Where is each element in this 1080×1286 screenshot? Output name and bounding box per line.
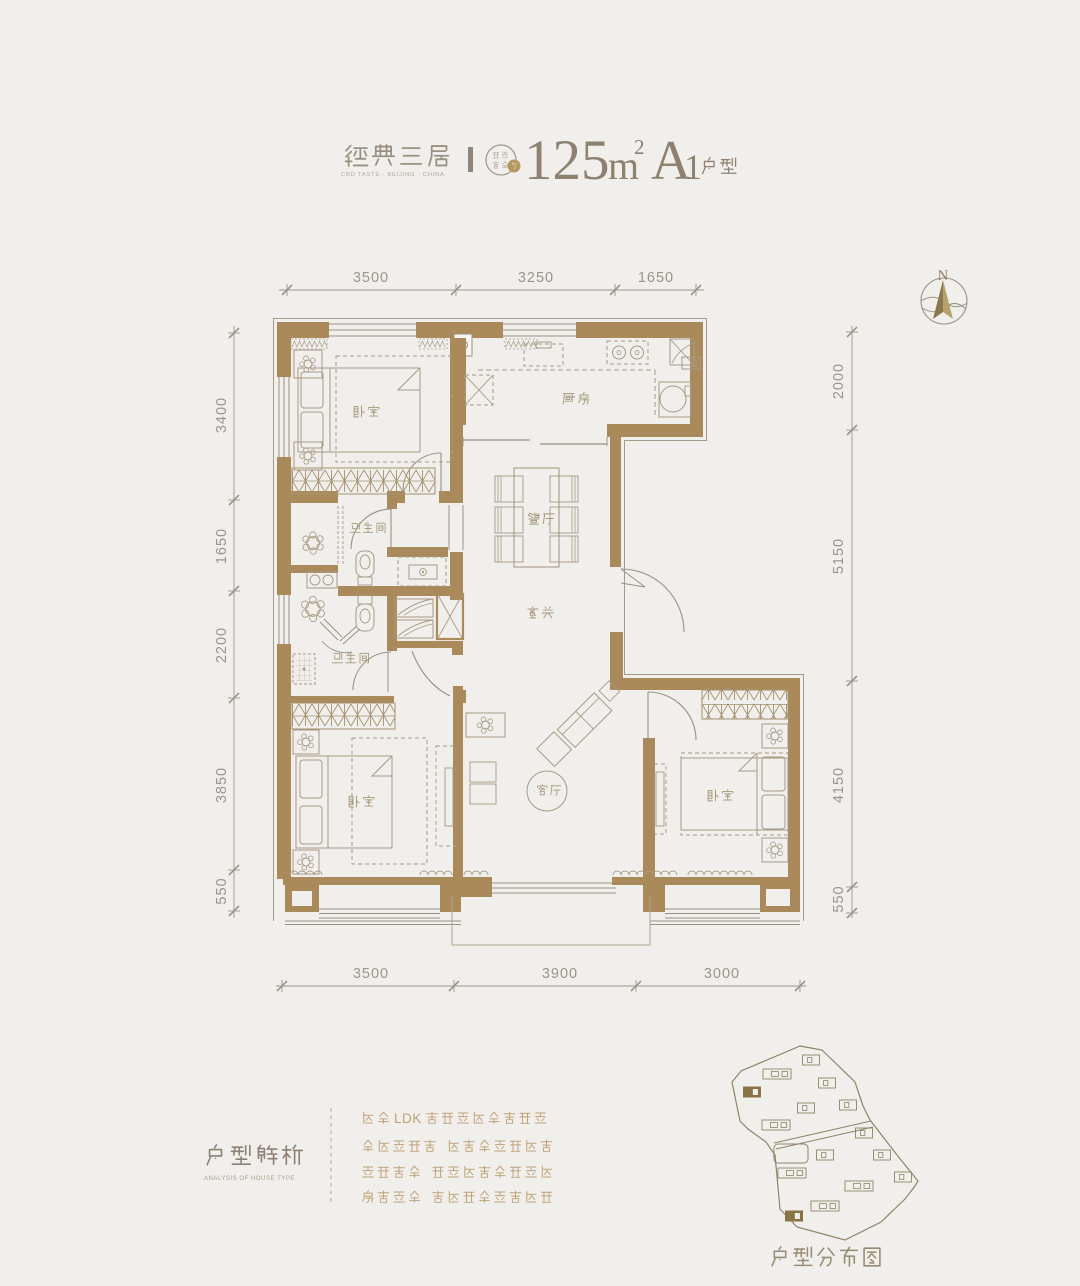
svg-text:2200: 2200	[214, 627, 230, 663]
svg-text:3500: 3500	[353, 966, 389, 982]
svg-text:3900: 3900	[542, 966, 578, 982]
svg-text:550: 550	[831, 885, 847, 912]
svg-text:3250: 3250	[518, 270, 554, 286]
svg-text:4150: 4150	[831, 767, 847, 803]
svg-text:1650: 1650	[638, 270, 674, 286]
svg-text:3850: 3850	[214, 767, 230, 803]
svg-text:3400: 3400	[214, 397, 230, 433]
svg-text:LDK: LDK	[394, 1111, 422, 1126]
svg-text:3000: 3000	[704, 966, 740, 982]
svg-text:3500: 3500	[353, 270, 389, 286]
svg-text:2: 2	[634, 135, 645, 159]
svg-text:5150: 5150	[831, 538, 847, 574]
svg-text:ANALYSIS OF HOUSE TYPE: ANALYSIS OF HOUSE TYPE	[204, 1175, 295, 1182]
svg-text:550: 550	[214, 877, 230, 904]
svg-text:2000: 2000	[831, 363, 847, 399]
svg-text:N: N	[938, 268, 949, 284]
svg-text:1: 1	[684, 147, 702, 187]
svg-text:CBD TASTE · BEIJING · CHINA: CBD TASTE · BEIJING · CHINA	[341, 172, 445, 178]
svg-text:1650: 1650	[214, 528, 230, 564]
svg-text:125: 125	[524, 129, 610, 192]
